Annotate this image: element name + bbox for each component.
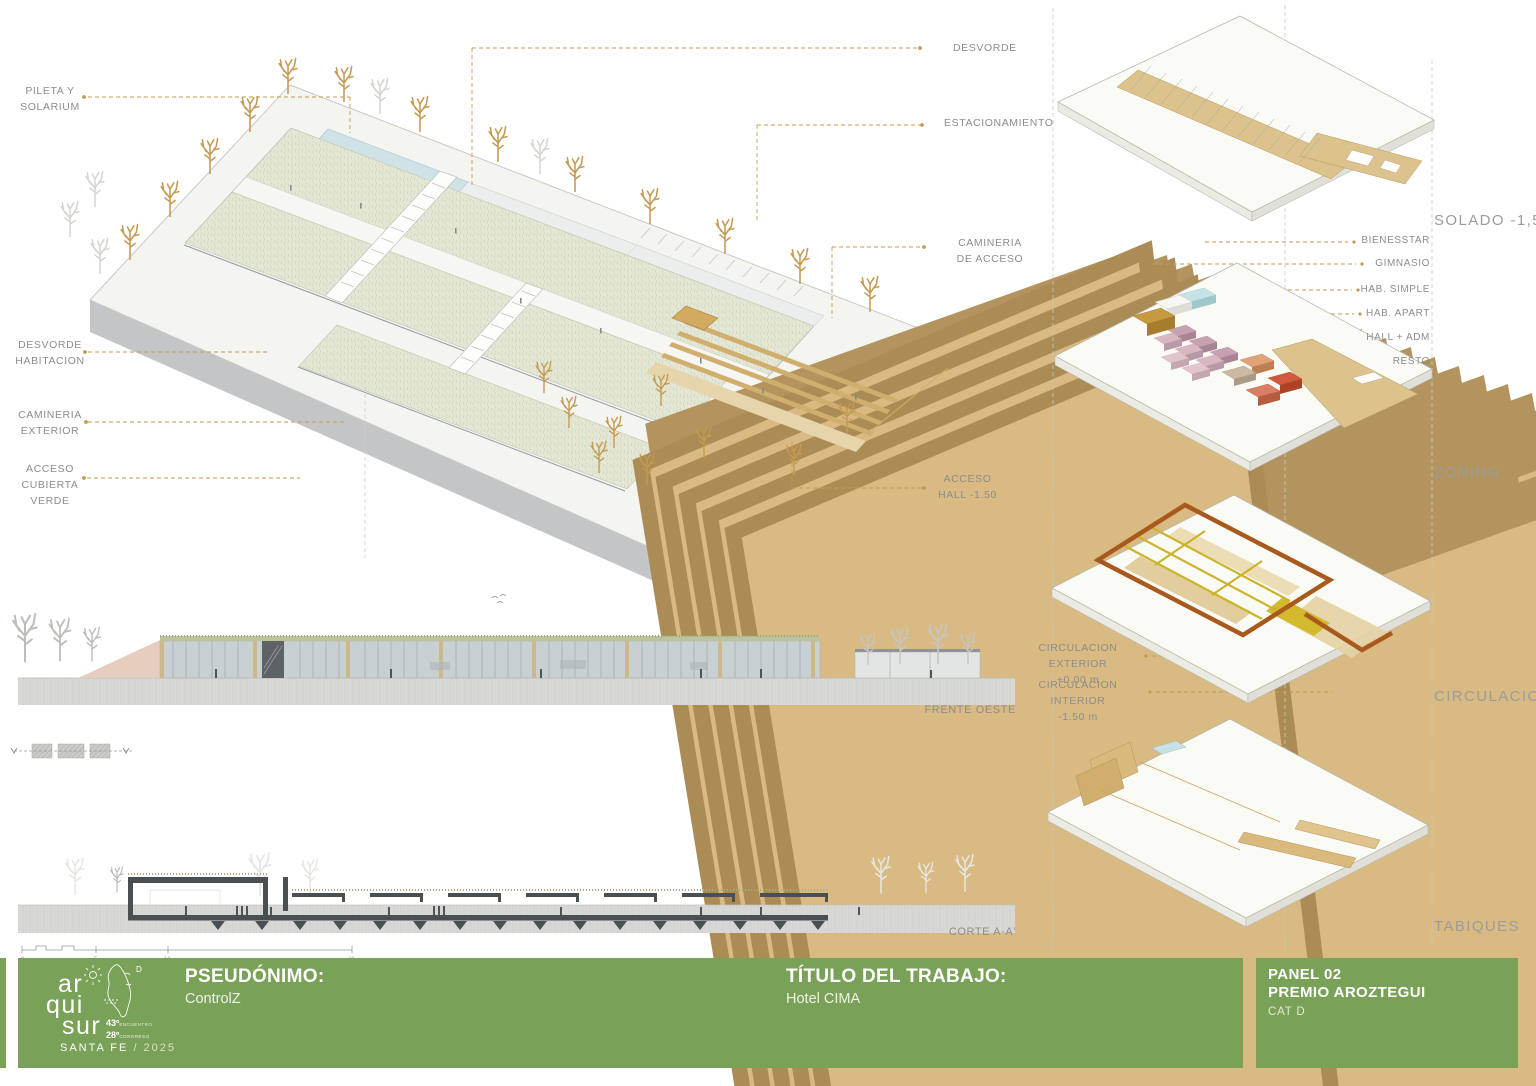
section-title: CORTE A-A' xyxy=(880,924,1016,941)
titulo-field: TÍTULO DEL TRABAJO: Hotel CIMA xyxy=(786,966,1007,1007)
callout-estacionamiento: ESTACIONAMIENTO xyxy=(944,116,1074,132)
callout-desvorde-habitacion: DESVORDE HABITACION xyxy=(10,338,90,370)
event-word: CONGRESO xyxy=(119,1034,149,1039)
diagram-title-tabiques: TABIQUES xyxy=(1434,918,1520,935)
logo-year: / 2025 xyxy=(133,1042,176,1054)
callout-camineria-exterior: CAMINERIA EXTERIOR xyxy=(10,408,90,440)
pseudonimo-value: ControlZ xyxy=(185,991,324,1007)
circulacion-interior-label: CIRCULACION INTERIOR -1.50 m xyxy=(1018,678,1138,725)
callout-camineria-de-acceso: CAMINERIA DE ACCESO xyxy=(935,236,1045,268)
titulo-label: TÍTULO DEL TRABAJO: xyxy=(786,966,1007,988)
event-number: 28º xyxy=(106,1030,119,1040)
pseudonimo-field: PSEUDÓNIMO: ControlZ xyxy=(185,966,324,1007)
logo-location: SANTA FE / 2025 xyxy=(60,1042,176,1054)
key-plan xyxy=(11,744,132,758)
competition-panel: 0 5 10 20 xyxy=(0,0,1536,1086)
callout-acceso-cubierta-verde: ACCESO CUBIERTA VERDE xyxy=(10,462,90,509)
callout-desvorde: DESVORDE xyxy=(953,41,1073,57)
zoning-legend-hab-apart: HAB. APART xyxy=(1335,308,1430,319)
callout-acceso-hall: ACCESO HALL -1.50 xyxy=(925,472,1010,504)
categoria: CAT D xyxy=(1268,1006,1426,1018)
zoning-legend-bienestar: BIENESSTAR xyxy=(1335,235,1430,246)
logo-city: SANTA FE xyxy=(60,1042,128,1054)
elevation-title: FRENTE OESTE xyxy=(880,702,1016,719)
panel-drawings: 0 5 10 20 xyxy=(0,0,1536,1086)
zoning-legend-resto: RESTO xyxy=(1335,356,1430,367)
premio-name: PREMIO AROZTEGUI xyxy=(1268,984,1426,1002)
callout-pileta-solarium: PILETA Y SOLARIUM xyxy=(10,84,90,116)
zoning-legend-hall-adm: HALL + ADM xyxy=(1335,332,1430,343)
diagram-solado xyxy=(1058,16,1434,221)
elevation-trees xyxy=(13,614,100,662)
footer-panel-info: PANEL 02 PREMIO AROZTEGUI CAT D xyxy=(1256,958,1518,1068)
titulo-value: Hotel CIMA xyxy=(786,991,1007,1007)
pseudonimo-label: PSEUDÓNIMO: xyxy=(185,966,324,988)
birds xyxy=(492,595,506,604)
logo-event-28: 28ºCONGRESO xyxy=(106,1028,150,1042)
zoning-legend-gimnasio: GIMNASIO xyxy=(1335,258,1430,269)
event-word: ENCUENTRO xyxy=(119,1022,152,1027)
event-number: 43º xyxy=(106,1018,119,1028)
diagram-title-solado: SOLADO -1,5 xyxy=(1434,212,1536,229)
footer-bar: ar qui sur D 43ºENCUENTRO 28ºCONGRESO SA… xyxy=(18,958,1243,1068)
footer-edge-sliver xyxy=(0,958,6,1068)
zoning-legend-hab-simple: HAB. SIMPLE xyxy=(1335,284,1430,295)
diagram-title-zoning: ZONING xyxy=(1434,464,1501,481)
logo-letter: D xyxy=(136,965,142,974)
panel-number: PANEL 02 xyxy=(1268,966,1426,984)
diagram-title-circulacion: CIRCULACION xyxy=(1434,688,1536,705)
